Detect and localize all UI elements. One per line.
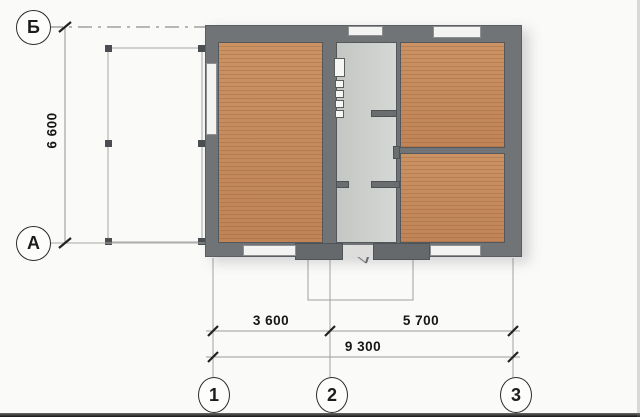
ladder-icon xyxy=(334,58,345,77)
axis-label-1: 1 xyxy=(209,385,219,406)
dimension-vertical-6600: 6 600 xyxy=(45,91,60,171)
axis-bubble-a: А xyxy=(16,226,51,261)
window-bottom-right-room xyxy=(430,245,481,256)
axis-label-a: А xyxy=(27,233,40,254)
axis-label-b: Б xyxy=(27,17,40,38)
window-bottom-left-room xyxy=(243,245,296,256)
wall-hall-mid-partition-right xyxy=(371,181,400,188)
building-outline xyxy=(205,25,522,257)
dimension-segment-3600: 3 600 xyxy=(231,313,311,328)
room-hall xyxy=(336,42,397,243)
wall-hall-north-partition xyxy=(371,110,397,117)
facade-pier-left xyxy=(295,243,343,260)
axis-label-3: 3 xyxy=(511,385,521,406)
window-top-hall xyxy=(348,26,383,36)
floor-plan-sheet: Б А 1 2 3 6 600 3 600 5 700 9 300 xyxy=(0,0,640,417)
wall-hall-mid-partition-left xyxy=(336,181,349,188)
terrace-posts xyxy=(105,45,205,245)
axis-bubble-2: 2 xyxy=(316,377,348,413)
axis-bubble-b: Б xyxy=(16,10,51,45)
ladder-rung-icon xyxy=(335,80,344,88)
room-bottom-right xyxy=(400,153,505,243)
entrance-door-opening xyxy=(343,245,373,257)
dimension-total-9300: 9 300 xyxy=(323,339,403,354)
wall-stub-between-doors xyxy=(393,146,400,159)
window-top-right-room xyxy=(433,26,481,38)
dimension-segment-5700: 5 700 xyxy=(381,313,461,328)
axis-bubble-3: 3 xyxy=(500,377,532,413)
ladder-rung-icon xyxy=(335,90,344,98)
axis-label-2: 2 xyxy=(327,385,337,406)
facade-pier-right xyxy=(373,243,430,260)
room-top-right xyxy=(400,42,505,148)
porch-outline xyxy=(308,256,413,300)
axis-bubble-1: 1 xyxy=(198,377,230,413)
terrace-outline xyxy=(108,48,202,242)
ladder-rung-icon xyxy=(335,100,344,108)
scan-edge-shadow-bottom xyxy=(0,413,640,417)
window-left-wall xyxy=(206,63,217,135)
room-left xyxy=(218,42,323,243)
ladder-rung-icon xyxy=(335,110,344,118)
